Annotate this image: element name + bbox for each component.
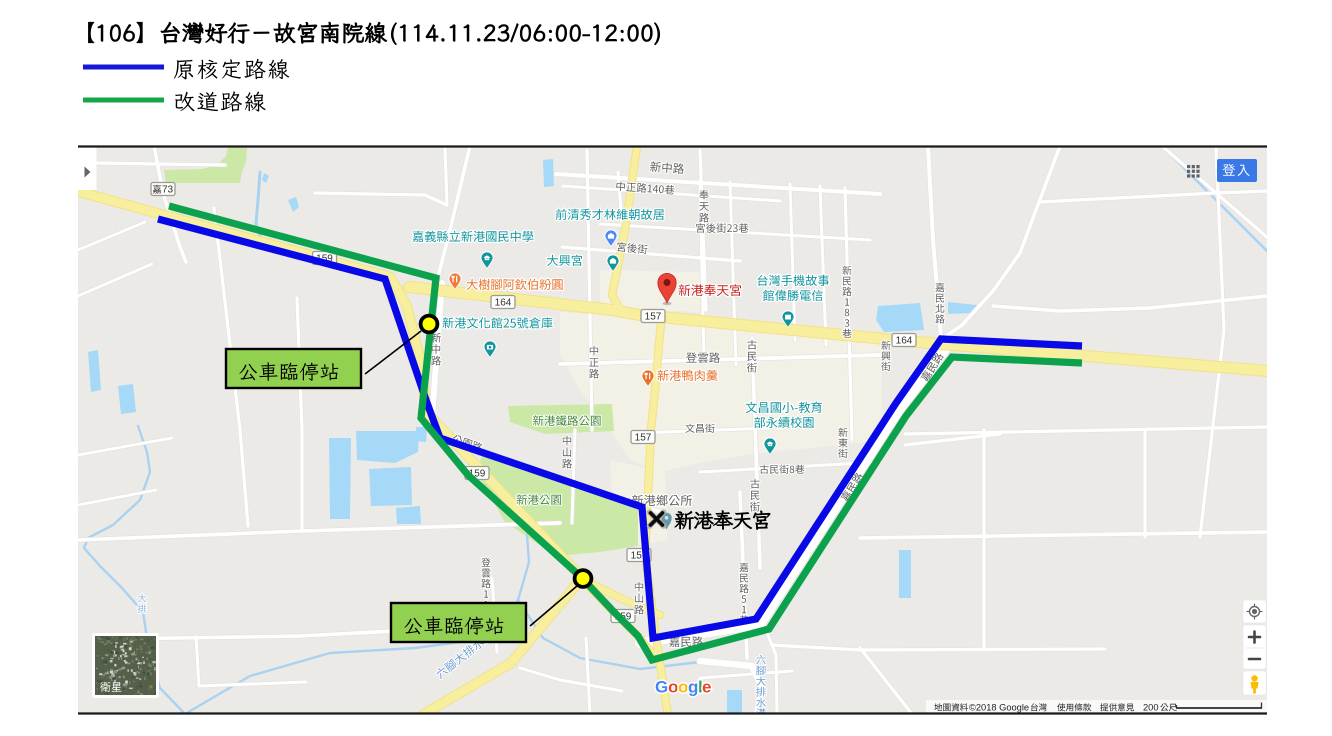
- svg-text:200: 200: [1143, 703, 1159, 713]
- svg-text:©2018 Google: ©2018 Google: [969, 703, 1029, 713]
- svg-text:157: 157: [645, 312, 662, 323]
- svg-text:G: G: [655, 678, 668, 697]
- svg-text:73: 73: [162, 185, 174, 196]
- svg-text:e: e: [702, 678, 711, 697]
- svg-text:164: 164: [896, 336, 913, 347]
- svg-text:o: o: [678, 678, 688, 697]
- svg-text:o: o: [668, 678, 678, 697]
- svg-text:157: 157: [635, 433, 652, 444]
- svg-text:g: g: [688, 678, 698, 697]
- svg-text:164: 164: [495, 298, 512, 309]
